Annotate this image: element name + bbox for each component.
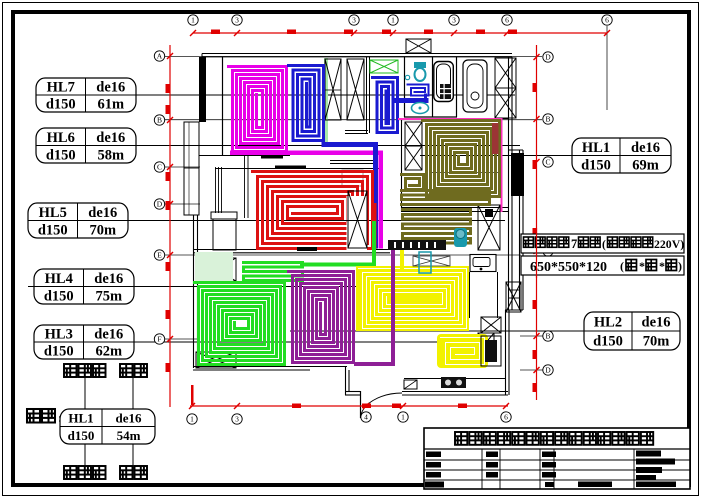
svg-text:C: C	[157, 163, 162, 172]
svg-text:(: (	[602, 239, 606, 251]
svg-text:de16: de16	[94, 327, 123, 343]
svg-text:HL7: HL7	[47, 80, 75, 96]
svg-text:61m: 61m	[97, 97, 124, 113]
svg-text:d150: d150	[581, 158, 611, 174]
svg-text:de16: de16	[96, 80, 125, 96]
svg-text:58m: 58m	[97, 148, 124, 164]
svg-text:HL2: HL2	[594, 315, 622, 331]
svg-text:7: 7	[571, 237, 577, 251]
svg-text:(: (	[620, 259, 624, 273]
svg-text:de16: de16	[631, 140, 660, 156]
svg-text:B: B	[545, 115, 550, 124]
svg-text:d150: d150	[68, 428, 95, 443]
svg-text:B: B	[545, 332, 550, 341]
svg-text:D: D	[545, 366, 551, 375]
svg-text:de16: de16	[116, 410, 143, 425]
svg-text:D: D	[157, 200, 163, 209]
svg-text:d150: d150	[44, 289, 74, 305]
svg-text:d150: d150	[593, 334, 623, 350]
svg-text:6: 6	[504, 413, 508, 422]
svg-text:B: B	[157, 116, 162, 125]
svg-text:650*550*120: 650*550*120	[530, 260, 607, 275]
svg-text:HL3: HL3	[45, 327, 73, 343]
svg-text:HL1: HL1	[582, 140, 610, 156]
svg-text:d150: d150	[38, 223, 68, 239]
svg-text:de16: de16	[94, 271, 123, 287]
svg-text:3: 3	[235, 16, 239, 25]
svg-text:d150: d150	[46, 148, 76, 164]
svg-text:HL4: HL4	[45, 271, 73, 287]
svg-text:de16: de16	[88, 205, 117, 221]
svg-text:6: 6	[605, 16, 609, 25]
svg-text:F: F	[157, 335, 161, 344]
svg-text:E: E	[157, 251, 162, 260]
svg-text:d150: d150	[44, 344, 74, 360]
svg-text:69m: 69m	[632, 158, 659, 174]
svg-text:3: 3	[235, 415, 239, 424]
svg-text:1: 1	[391, 16, 395, 25]
svg-text:HL1: HL1	[68, 410, 93, 425]
svg-text:1: 1	[191, 16, 195, 25]
svg-text:de16: de16	[96, 130, 125, 146]
svg-text:54m: 54m	[117, 428, 141, 443]
svg-text:C: C	[545, 158, 550, 167]
svg-text:*: *	[639, 259, 645, 273]
svg-text:HL6: HL6	[47, 130, 75, 146]
svg-text:62m: 62m	[95, 344, 122, 360]
svg-text:70m: 70m	[89, 223, 116, 239]
svg-text:75m: 75m	[95, 289, 122, 305]
svg-text:70m: 70m	[643, 334, 670, 350]
svg-text:1: 1	[190, 415, 194, 424]
svg-text:HL5: HL5	[39, 205, 67, 221]
svg-text:6: 6	[505, 16, 509, 25]
svg-text:3: 3	[352, 16, 356, 25]
svg-text:3: 3	[452, 16, 456, 25]
svg-text:D: D	[545, 53, 551, 62]
svg-text:220V): 220V)	[654, 237, 684, 251]
svg-text:*: *	[659, 259, 665, 273]
svg-text:): )	[678, 259, 682, 273]
svg-text:d150: d150	[46, 97, 76, 113]
svg-text:de16: de16	[642, 315, 671, 331]
svg-text:A: A	[157, 52, 163, 61]
svg-text:1: 1	[401, 413, 405, 422]
svg-text:4: 4	[364, 413, 368, 422]
